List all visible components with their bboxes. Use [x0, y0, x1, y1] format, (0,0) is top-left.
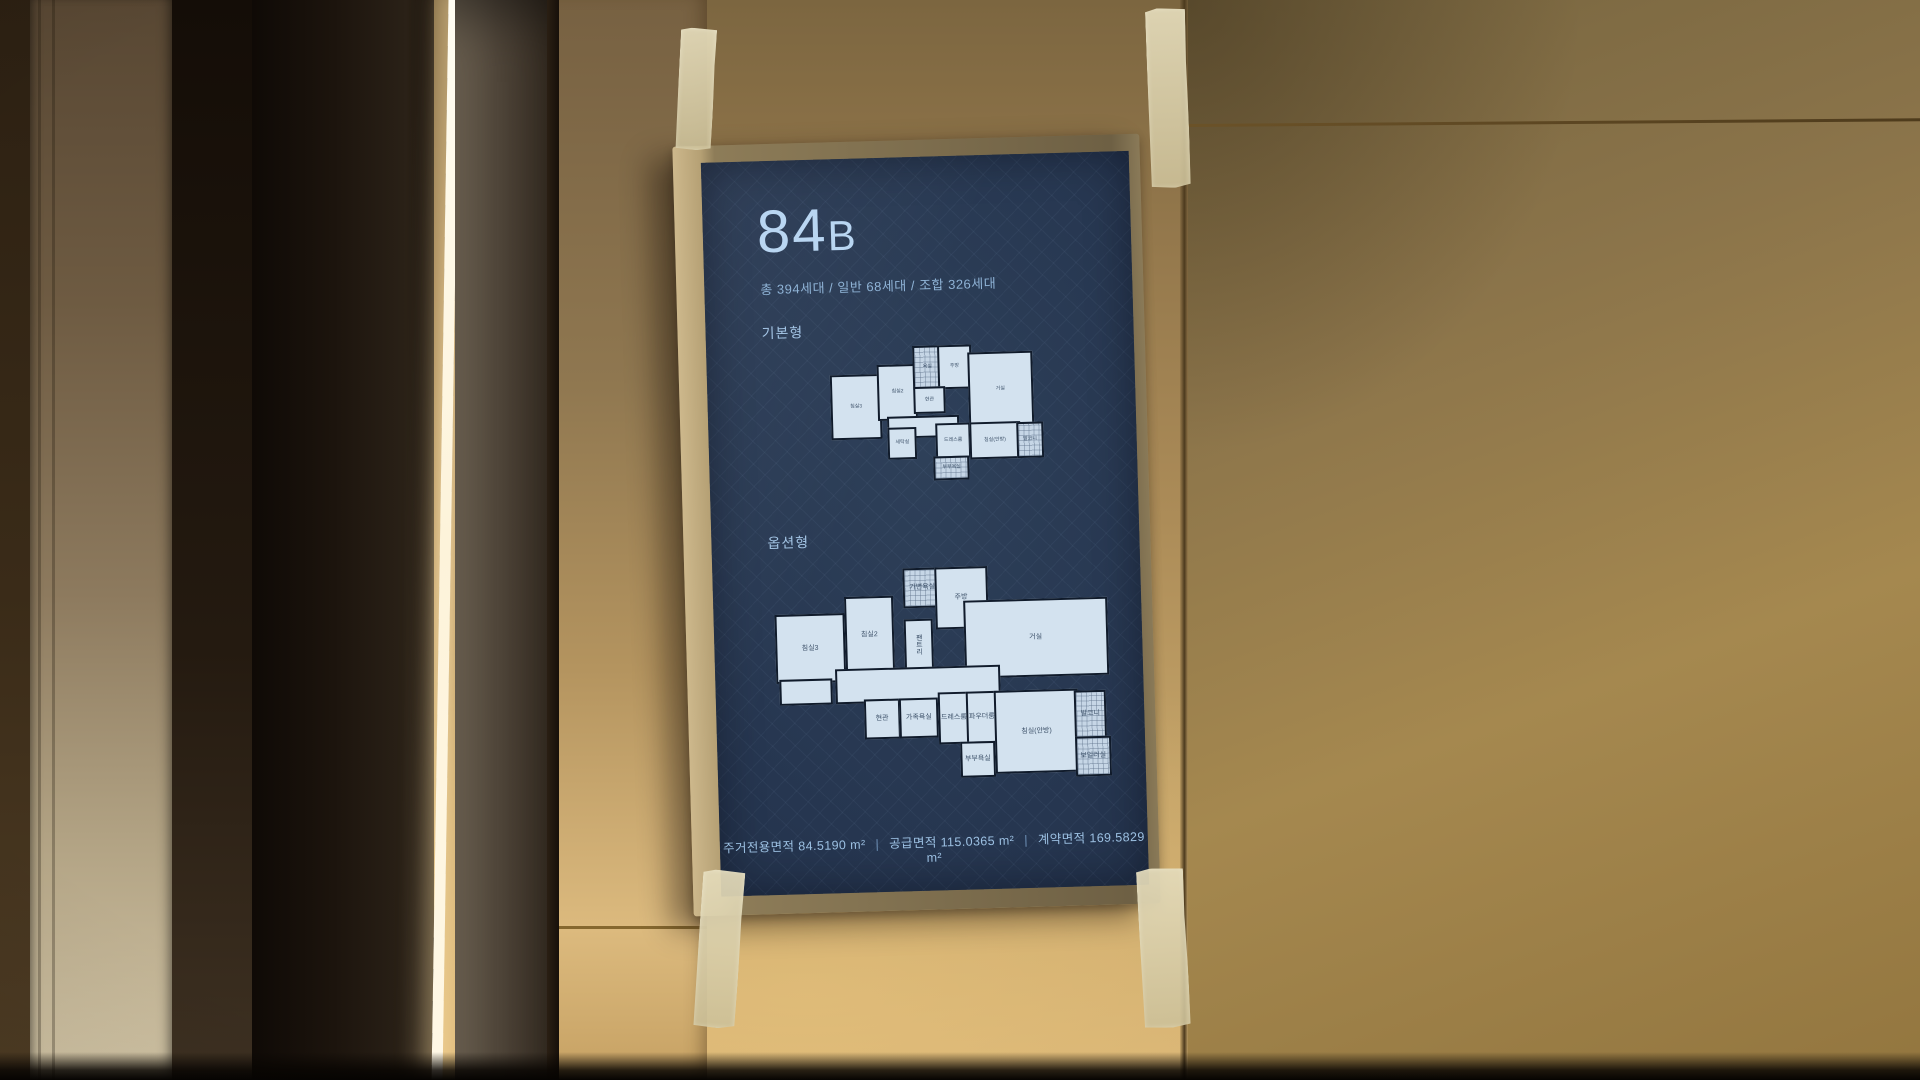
room-master-bedroom: 침실(안방)	[993, 689, 1080, 775]
room-family-bathroom: 가족욕실	[899, 697, 939, 738]
room-living: 거실	[967, 350, 1034, 427]
unit-title: 84B	[756, 195, 859, 267]
floorplan-basic: 침실3 침실2 욕실 주방 현관 거실 세탁실 드레스룸 침실(안방) 발코니 …	[822, 339, 1052, 497]
poster-screen: 84B 총 394세대 / 일반 68세대 / 조합 326세대 기본형 침실3…	[701, 151, 1149, 897]
left-wall-edge	[0, 0, 30, 1080]
room-bedroom3: 침실3	[830, 374, 883, 440]
floor-shadow	[0, 1052, 1920, 1080]
household-info: 총 394세대 / 일반 68세대 / 조합 326세대	[760, 273, 996, 299]
dark-door-opening	[252, 0, 434, 1080]
room-pantry: 팬트리	[904, 618, 934, 671]
room-boiler-room: 보일러실	[1075, 736, 1112, 777]
pilaster-seam	[559, 926, 707, 929]
room-balcony: 발코니	[1074, 690, 1107, 738]
room-entrance: 현관	[914, 386, 946, 414]
section-label-option: 옵션형	[767, 532, 809, 553]
room-entrance: 현관	[864, 698, 901, 739]
masking-tape-top-left	[675, 27, 717, 151]
room-bedroom2: 침실2	[843, 595, 895, 675]
molding-groove	[52, 0, 55, 1080]
floorplan-option: 침실3 침실2 가변욕실 팬트리 주방 거실 현관 가족욕실 드레스룸 파우더룸…	[762, 556, 1119, 806]
masking-tape-bottom-right	[1136, 867, 1191, 1029]
room-balcony: 발코니	[1016, 422, 1044, 459]
room-master-bedroom: 침실(안방)	[969, 421, 1021, 460]
wall-corner-seam	[547, 0, 559, 1080]
molding-groove	[38, 0, 41, 1080]
area-separator: |	[875, 837, 879, 851]
room-utility: 세탁실	[888, 427, 918, 461]
masking-tape-top-right	[1145, 7, 1191, 188]
room-master-bathroom: 부부욕실	[960, 741, 996, 777]
doorway-shadow-gap	[172, 0, 252, 1080]
area-supply: 공급면적 115.0365 m²	[889, 833, 1014, 850]
floorplan-poster-board: 84B 총 394세대 / 일반 68세대 / 조합 326세대 기본형 침실3…	[672, 134, 1160, 917]
unit-suffix: B	[827, 212, 858, 260]
room-dressroom: 드레스룸	[935, 422, 972, 459]
unit-number: 84	[756, 196, 829, 265]
photo-scene: 84B 총 394세대 / 일반 68세대 / 조합 326세대 기본형 침실3…	[0, 0, 1920, 1080]
wall-return-panel	[455, 0, 547, 1080]
section-label-basic: 기본형	[761, 322, 803, 343]
area-private: 주거전용면적 84.5190 m²	[723, 838, 866, 856]
area-info: 주거전용면적 84.5190 m²|공급면적 115.0365 m²|계약면적 …	[720, 826, 1149, 871]
wall-panel-right	[1188, 0, 1920, 1080]
room-master-bathroom: 부부욕실	[934, 456, 970, 481]
area-separator: |	[1024, 833, 1028, 847]
room-closet	[779, 679, 833, 706]
